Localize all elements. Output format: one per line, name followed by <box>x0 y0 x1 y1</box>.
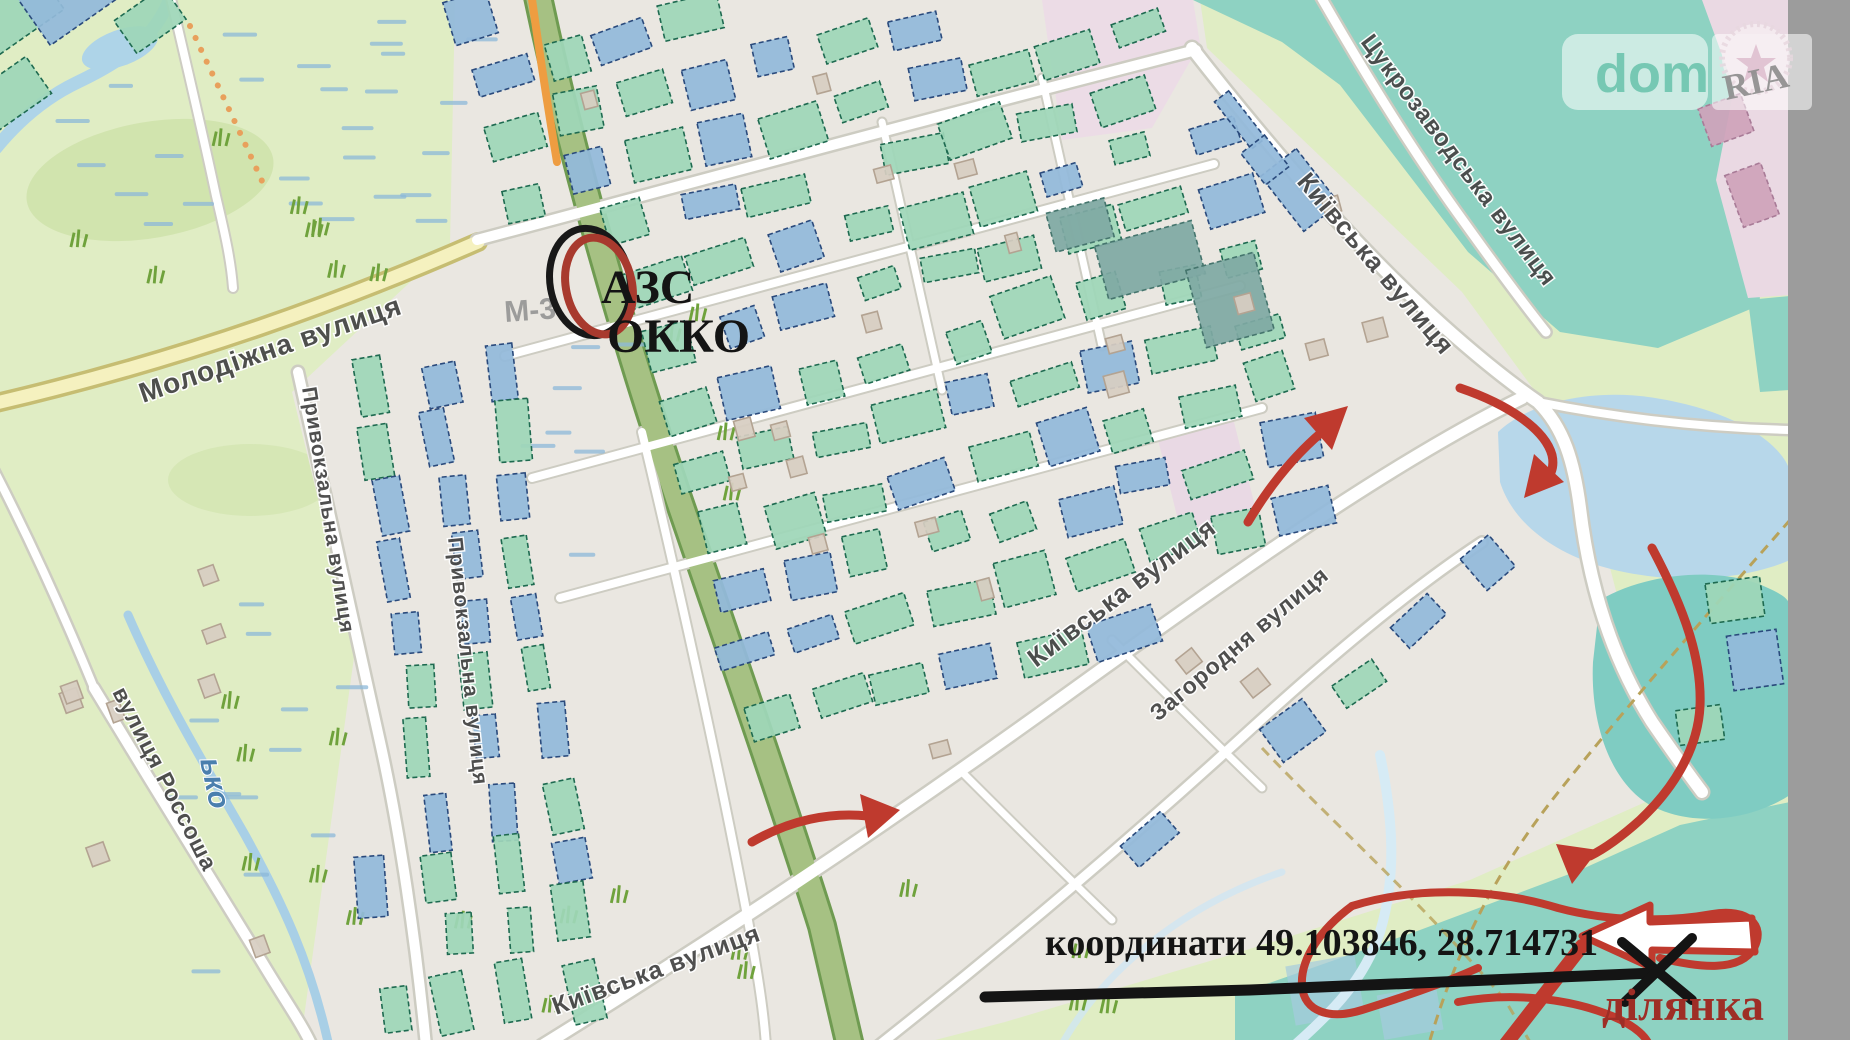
page-background-strip <box>1788 0 1850 1040</box>
brand-watermark: dom RIA <box>1562 24 1812 110</box>
plot-label: ділянка <box>1602 979 1764 1030</box>
coordinates-label: координати 49.103846, 28.714731 <box>1045 922 1598 964</box>
map-canvas[interactable]: Молодіжна вулиця Привокзальна вулиця При… <box>0 0 1850 1040</box>
poi-label-line2: ОККО <box>607 310 750 363</box>
map-svg: Молодіжна вулиця Привокзальна вулиця При… <box>0 0 1850 1040</box>
road-ref-label: М-3 <box>503 292 557 329</box>
poi-label-line1: АЗС <box>601 261 694 314</box>
brand-dom-text: dom <box>1595 44 1709 104</box>
